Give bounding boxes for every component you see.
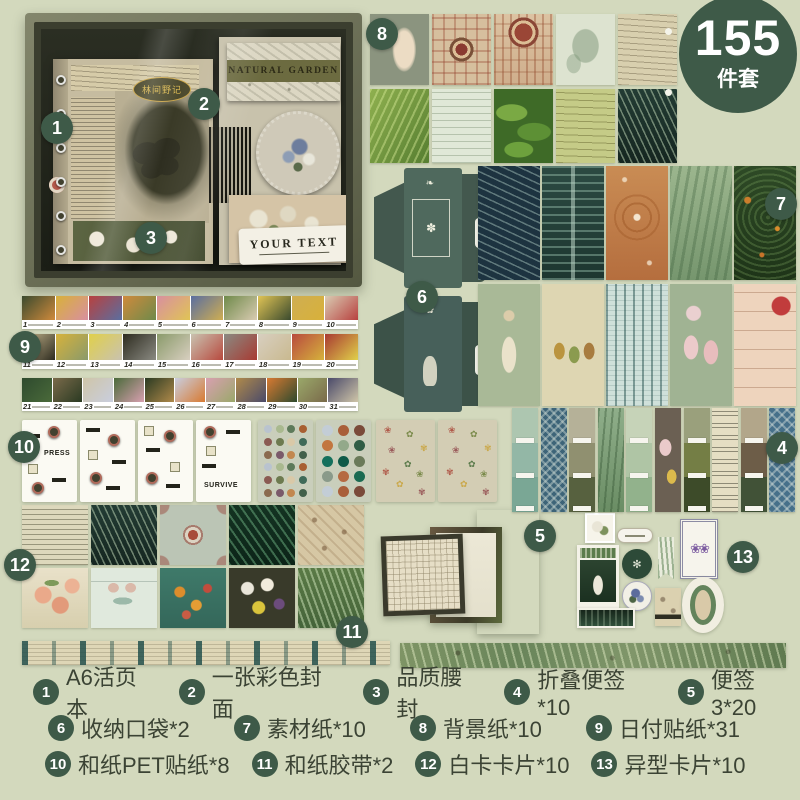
envelope-frame-motif: ✽ — [412, 199, 450, 257]
dot-sticker — [287, 489, 295, 497]
legend-item-7: 7素材纸*10 — [234, 712, 366, 744]
shaped-card-ornate-frame: ❀❀ — [680, 519, 718, 579]
date-sticker-image — [56, 296, 89, 320]
legend: 1A6活页本2一张彩色封面3品质腰封4折叠便签*105便签3*206收纳口袋*2… — [0, 674, 800, 782]
date-caption — [201, 364, 221, 366]
date-sticker: 6 — [191, 296, 224, 329]
dot-sticker — [287, 451, 295, 459]
date-number: 25 — [146, 403, 154, 411]
dot-sticker — [338, 425, 349, 436]
white-card — [298, 505, 364, 565]
background-paper — [432, 14, 491, 85]
date-sticker-image — [191, 296, 224, 320]
item-marker-3: 3 — [135, 222, 167, 254]
date-caption — [339, 406, 356, 408]
date-number: 8 — [259, 321, 263, 329]
date-band: 6 — [191, 320, 224, 329]
item-marker-12: 12 — [4, 549, 36, 581]
item-marker-10: 10 — [8, 431, 40, 463]
notebook-title-label: 林间野记 — [133, 77, 191, 102]
note-label — [630, 506, 648, 511]
legend-row: 10和纸PET贴纸*811和纸胶带*212白卡卡片*1013异型卡片*10 — [0, 746, 800, 782]
material-paper — [478, 284, 540, 406]
date-sticker: 20 — [325, 334, 358, 369]
date-caption — [167, 364, 187, 366]
date-band: 7 — [224, 320, 257, 329]
date-number: 2 — [57, 321, 61, 329]
material-paper — [542, 284, 604, 406]
date-band: 29 — [267, 402, 297, 411]
folding-note-pattern — [655, 408, 681, 512]
dot-sticker — [338, 486, 349, 497]
item-marker-5: 5 — [524, 520, 556, 552]
date-band: 16 — [191, 360, 224, 369]
sticker-ring — [164, 430, 176, 442]
legend-row: 1A6活页本2一张彩色封面3品质腰封4折叠便签*105便签3*20 — [0, 674, 800, 710]
date-sticker-image — [123, 334, 156, 360]
dot-sticker — [322, 456, 333, 467]
date-band: 4 — [123, 320, 156, 329]
dot-sticker — [322, 471, 333, 482]
date-sticker: 18 — [258, 334, 291, 369]
date-sticker: 29 — [267, 378, 297, 411]
date-sticker-image — [175, 378, 205, 402]
note-label — [688, 473, 706, 478]
sticker-txt: SURVIVE — [204, 482, 238, 489]
sticker-ring — [108, 434, 120, 446]
date-band: 1 — [22, 320, 55, 329]
date-caption — [186, 406, 203, 408]
white-card — [229, 568, 295, 628]
date-band: 27 — [206, 402, 236, 411]
memo-pad-grid — [381, 534, 466, 617]
material-paper — [670, 284, 732, 406]
date-band: 18 — [258, 360, 291, 369]
date-band: 15 — [157, 360, 190, 369]
date-sticker-image — [328, 378, 358, 402]
note-label — [688, 506, 706, 511]
white-card — [91, 505, 157, 565]
date-number: 14 — [124, 361, 132, 369]
date-caption — [268, 364, 288, 366]
date-band: 31 — [328, 402, 358, 411]
dot-sticker — [287, 438, 295, 446]
sticker-txt: PRESS — [44, 450, 70, 457]
date-number: 30 — [299, 403, 307, 411]
sticker-ring — [48, 426, 60, 438]
date-caption — [129, 324, 154, 326]
date-sticker: 25 — [145, 378, 175, 411]
dot-sticker — [338, 471, 349, 482]
sticker-sheet-floral: ❀✿✾❀✿✾❀✿✾ — [376, 420, 435, 502]
note-label — [573, 473, 591, 478]
envelope-motif: ❧ — [374, 178, 486, 189]
material-paper — [478, 166, 540, 280]
date-sticker: 24 — [114, 378, 144, 411]
shaped-card-oval-label — [617, 528, 653, 543]
belly-band-ticket: YOUR TEXT — [238, 225, 346, 265]
flower-sticker-icon: ✾ — [382, 468, 390, 477]
shaped-card-oval-wreath — [682, 577, 724, 633]
date-number: 17 — [225, 361, 233, 369]
date-caption — [32, 406, 49, 408]
flower-sticker-icon: ✿ — [406, 430, 414, 439]
date-sticker: 10 — [325, 296, 358, 329]
date-band: 22 — [53, 402, 83, 411]
date-sticker: 30 — [298, 378, 328, 411]
legend-number-badge: 8 — [410, 715, 436, 741]
sticker-sheet-washi-pet — [80, 420, 135, 502]
dot-sticker — [276, 489, 284, 497]
date-sticker: 9 — [292, 296, 325, 329]
date-sticker-image — [325, 296, 358, 320]
date-caption — [277, 406, 294, 408]
date-sticker: 3 — [89, 296, 122, 329]
piece-unit: 件套 — [717, 63, 759, 93]
dot-sticker — [354, 456, 365, 467]
background-paper — [370, 89, 429, 163]
flower-sticker-icon: ✾ — [446, 468, 454, 477]
date-sticker-image — [56, 334, 89, 360]
legend-item-6: 6收纳口袋*2 — [48, 712, 190, 744]
legend-item-9: 9日付贴纸*31 — [586, 712, 740, 744]
date-caption — [298, 324, 323, 326]
date-number: 3 — [90, 321, 94, 329]
legend-number-badge: 3 — [363, 679, 389, 705]
date-band: 25 — [145, 402, 175, 411]
date-sticker: 2 — [56, 296, 89, 329]
sticker-sheet-washi-pet: SURVIVE — [196, 420, 251, 502]
date-number: 12 — [57, 361, 65, 369]
date-band: 14 — [123, 360, 156, 369]
a6-notebook: 林间野记 — [53, 59, 213, 264]
date-sticker-image — [123, 296, 156, 320]
date-sticker-image — [89, 296, 122, 320]
material-paper — [670, 166, 732, 280]
date-sticker-image — [157, 334, 190, 360]
date-number: 20 — [326, 361, 334, 369]
dot-sticker — [354, 471, 365, 482]
shaped-card-photo-collage — [577, 545, 619, 609]
item-marker-9: 9 — [9, 331, 41, 363]
date-number: 13 — [90, 361, 98, 369]
legend-number-badge: 1 — [33, 679, 59, 705]
legend-label: 日付贴纸*31 — [619, 712, 740, 744]
date-number: 6 — [192, 321, 196, 329]
item-marker-1: 1 — [41, 112, 73, 144]
sticker-sq — [28, 464, 38, 474]
flower-sticker-icon: ✿ — [470, 430, 478, 439]
white-card — [229, 505, 295, 565]
folding-note-pattern — [712, 408, 738, 512]
sticker-ring — [146, 472, 158, 484]
date-caption — [133, 364, 153, 366]
date-band: 30 — [298, 402, 328, 411]
shaped-card-forest-strip — [577, 608, 635, 628]
date-band: 20 — [325, 360, 358, 369]
date-sticker-image — [236, 378, 266, 402]
date-sticker-image — [224, 334, 257, 360]
date-band: 2 — [56, 320, 89, 329]
date-caption — [155, 406, 172, 408]
date-sticker-strip: 2122232425262728293031 — [22, 378, 358, 411]
piece-count-badge: 155 件套 — [679, 0, 797, 113]
date-band: 19 — [292, 360, 325, 369]
notebook-binding — [53, 59, 68, 264]
background-paper — [556, 89, 615, 163]
dot-sticker — [264, 463, 272, 471]
date-band: 17 — [224, 360, 257, 369]
date-sticker: 17 — [224, 334, 257, 369]
legend-number-badge: 7 — [234, 715, 260, 741]
date-sticker: 4 — [123, 296, 156, 329]
sticker-sq — [88, 450, 98, 460]
date-band: 10 — [325, 320, 358, 329]
legend-label: 异型卡片*10 — [624, 748, 745, 780]
date-sticker: 28 — [236, 378, 266, 411]
dot-sticker — [354, 425, 365, 436]
date-caption — [62, 324, 87, 326]
date-sticker-image — [258, 296, 291, 320]
ticket-text: YOUR TEXT — [249, 234, 338, 252]
date-caption — [100, 364, 120, 366]
legend-number-badge: 12 — [415, 751, 441, 777]
dot-sticker — [322, 425, 333, 436]
gift-box-photo: 林间野记 NATURAL GARDEN YOUR TEXT — [25, 13, 362, 287]
date-number: 23 — [84, 403, 92, 411]
date-caption — [247, 406, 264, 408]
dot-sticker — [322, 440, 333, 451]
date-sticker-image — [292, 296, 325, 320]
note-label — [630, 438, 648, 443]
flower-sticker-icon: ✿ — [460, 480, 468, 489]
sticker-sheet-dots — [258, 420, 313, 502]
date-sticker: 5 — [157, 296, 190, 329]
sticker-bar — [226, 430, 240, 434]
date-caption — [197, 324, 222, 326]
shaped-card-pennant — [658, 537, 674, 579]
date-sticker-image — [298, 378, 328, 402]
date-sticker-image — [22, 378, 52, 402]
date-number: 15 — [158, 361, 166, 369]
date-caption — [28, 324, 53, 326]
date-caption — [336, 364, 356, 366]
background-paper — [556, 14, 615, 85]
shaped-card-round-badge: ✻ — [622, 549, 652, 579]
date-sticker-image — [258, 334, 291, 360]
legend-number-badge: 5 — [678, 679, 704, 705]
date-number: 28 — [237, 403, 245, 411]
date-caption — [216, 406, 233, 408]
legend-number-badge: 4 — [504, 679, 530, 705]
black-fringe-decor — [209, 127, 251, 203]
binder-ring — [56, 143, 66, 153]
date-number: 16 — [192, 361, 200, 369]
dot-sticker — [264, 489, 272, 497]
dot-sticker — [299, 489, 307, 497]
date-number: 31 — [329, 403, 337, 411]
date-caption — [308, 406, 325, 408]
date-sticker-image — [114, 378, 144, 402]
binder-ring — [56, 245, 66, 255]
dot-sticker — [299, 451, 307, 459]
envelope-figure-motif — [423, 356, 437, 386]
date-sticker: 7 — [224, 296, 257, 329]
note-label — [745, 506, 763, 511]
white-card — [91, 568, 157, 628]
legend-number-badge: 10 — [45, 751, 71, 777]
flower-sticker-icon: ✿ — [396, 480, 404, 489]
date-caption — [94, 406, 111, 408]
legend-item-13: 13异型卡片*10 — [591, 748, 745, 780]
date-number: 18 — [259, 361, 267, 369]
date-sticker-strip: 12345678910 — [22, 296, 358, 329]
note-label — [688, 438, 706, 443]
date-sticker: 14 — [123, 334, 156, 369]
sticker-sheet-floral: ❀✿✾❀✿✾❀✿✾ — [438, 420, 497, 502]
flower-sticker-icon: ✾ — [420, 444, 428, 453]
date-sticker-image — [191, 334, 224, 360]
date-band: 21 — [22, 402, 52, 411]
item-marker-13: 13 — [727, 541, 759, 573]
item-marker-11: 11 — [336, 616, 368, 648]
note-label — [745, 473, 763, 478]
dot-sticker — [276, 476, 284, 484]
date-band: 3 — [89, 320, 122, 329]
sticker-sq — [170, 462, 180, 472]
date-number: 29 — [268, 403, 276, 411]
white-card — [160, 568, 226, 628]
folding-note-pattern — [598, 408, 624, 512]
dot-sticker — [264, 476, 272, 484]
date-caption — [235, 364, 255, 366]
dot-sticker — [264, 438, 272, 446]
storage-pocket: ✿ — [374, 296, 486, 412]
date-number: 22 — [54, 403, 62, 411]
white-card — [160, 505, 226, 565]
date-sticker-image — [325, 334, 358, 360]
folding-note-blocks — [741, 408, 767, 512]
legend-label: 白卡卡片*10 — [448, 748, 569, 780]
legend-label: 和纸PET贴纸*8 — [78, 748, 230, 780]
dot-sticker — [264, 425, 272, 433]
date-band: 13 — [89, 360, 122, 369]
note-label — [516, 438, 534, 443]
legend-number-badge: 9 — [586, 715, 612, 741]
date-caption — [124, 406, 141, 408]
material-paper — [734, 284, 796, 406]
legend-label: 背景纸*10 — [443, 712, 542, 744]
flower-sticker-icon: ✾ — [482, 488, 490, 497]
date-sticker-image — [53, 378, 83, 402]
date-band: 12 — [56, 360, 89, 369]
shaped-card-collage-bits — [655, 588, 681, 626]
product-collage: 林间野记 NATURAL GARDEN YOUR TEXT 15 — [0, 0, 800, 800]
note-label — [516, 506, 534, 511]
dot-sticker — [299, 438, 307, 446]
date-band: 24 — [114, 402, 144, 411]
flower-sticker-icon: ✿ — [468, 460, 476, 469]
item-marker-6: 6 — [406, 281, 438, 313]
flower-sticker-icon: ❀ — [388, 446, 396, 455]
date-sticker-image — [206, 378, 236, 402]
item-marker-4: 4 — [766, 432, 798, 464]
sticker-sheet-dots — [316, 420, 371, 502]
date-number: 21 — [23, 403, 31, 411]
date-number: 7 — [225, 321, 229, 329]
date-number: 9 — [293, 321, 297, 329]
deco-dot — [665, 89, 672, 96]
legend-number-badge: 11 — [252, 751, 278, 777]
date-sticker: 31 — [328, 378, 358, 411]
date-sticker-image — [89, 334, 122, 360]
background-paper — [618, 89, 677, 163]
dot-sticker — [299, 463, 307, 471]
dot-sticker — [322, 486, 333, 497]
binder-ring — [56, 75, 66, 85]
background-paper — [494, 89, 553, 163]
binder-ring — [56, 177, 66, 187]
sticker-sq — [144, 426, 154, 436]
date-number: 24 — [115, 403, 123, 411]
date-sticker: 22 — [53, 378, 83, 411]
note-label — [573, 438, 591, 443]
date-sticker-image — [267, 378, 297, 402]
flower-sticker-icon: ❀ — [452, 446, 460, 455]
sticker-ring — [204, 426, 216, 438]
flower-sticker-icon: ✾ — [484, 444, 492, 453]
legend-number-badge: 13 — [591, 751, 617, 777]
date-number: 10 — [326, 321, 334, 329]
date-sticker-image — [224, 296, 257, 320]
sticker-ring — [90, 472, 102, 484]
material-paper — [606, 284, 668, 406]
legend-item-11: 11和纸胶带*2 — [252, 748, 394, 780]
note-label — [516, 473, 534, 478]
date-caption — [336, 324, 356, 326]
dot-sticker — [338, 440, 349, 451]
date-caption — [230, 324, 255, 326]
sticker-bar — [146, 448, 160, 452]
sticker-sq — [206, 446, 216, 456]
date-sticker-image — [145, 378, 175, 402]
date-number: 26 — [176, 403, 184, 411]
dot-sticker — [287, 463, 295, 471]
date-band: 5 — [157, 320, 190, 329]
item-marker-8: 8 — [366, 18, 398, 50]
dot-sticker — [338, 456, 349, 467]
flower-sticker-icon: ✿ — [404, 460, 412, 469]
binder-ring — [56, 211, 66, 221]
date-sticker-image — [83, 378, 113, 402]
material-paper — [734, 166, 796, 280]
note-label — [745, 438, 763, 443]
deco-dot — [665, 28, 672, 35]
notebook-collage-newsprint — [71, 97, 117, 219]
item-marker-7: 7 — [765, 188, 797, 220]
date-sticker: 26 — [175, 378, 205, 411]
sticker-bar — [86, 428, 100, 432]
dot-sticker — [299, 425, 307, 433]
date-sticker-image — [22, 296, 55, 320]
date-number: 4 — [124, 321, 128, 329]
date-band: 28 — [236, 402, 266, 411]
dot-sticker — [287, 476, 295, 484]
sticker-bar — [52, 478, 66, 482]
date-caption — [32, 364, 53, 366]
date-sticker: 13 — [89, 334, 122, 369]
sticker-sheet-washi-pet — [138, 420, 193, 502]
